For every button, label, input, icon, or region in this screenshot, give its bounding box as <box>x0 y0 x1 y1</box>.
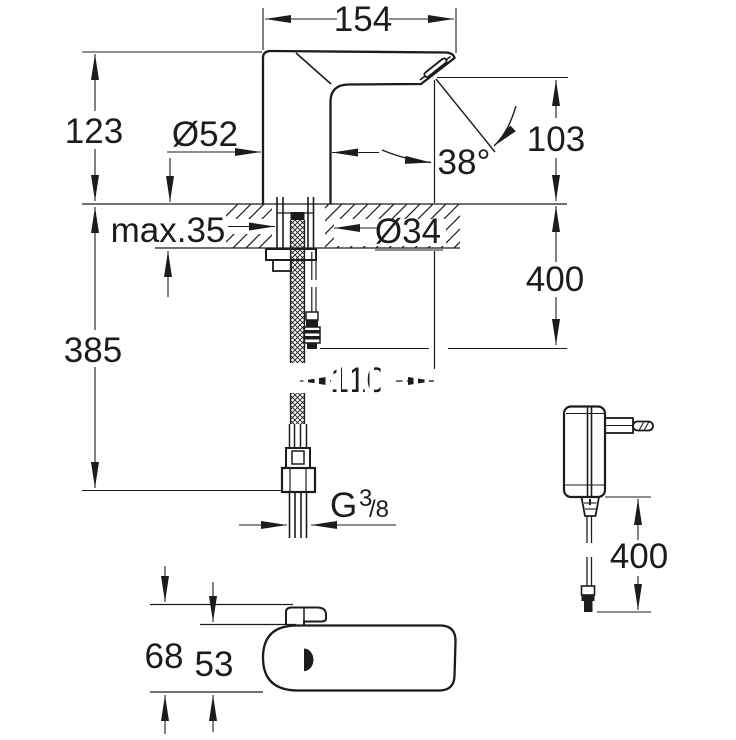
faucet-chamfer-edge <box>296 53 331 84</box>
cable-plug <box>304 312 320 349</box>
dim-label-spout-width: 154 <box>334 0 392 39</box>
psu-body <box>564 407 605 498</box>
shank-collar <box>291 212 305 220</box>
top-view-spout-tab <box>286 608 326 626</box>
mounting-nut <box>273 260 291 271</box>
dim-label-mounting-hole: Ø34 <box>375 212 441 251</box>
thread-letter: G <box>330 486 357 525</box>
dim-label-height-above-deck: 123 <box>65 112 123 151</box>
faucet-dimension-drawing: 154 123 385 Ø52 max.35 Ø34 <box>0 0 736 740</box>
psu-plug-prong <box>605 418 653 433</box>
dim-label-height-below-deck: 385 <box>64 331 122 370</box>
dim-label-body-depth: 53 <box>195 645 234 684</box>
dim-label-cable-length: 400 <box>526 260 584 299</box>
top-view-sensor-mark <box>304 649 313 672</box>
braided-hose-lower <box>291 393 305 424</box>
dim-label-max-deck-thickness: max.35 <box>111 211 226 250</box>
braided-hose-upper <box>291 220 305 363</box>
technical-drawing-page: 154 123 385 Ø52 max.35 Ø34 <box>0 0 736 740</box>
dim-label-outlet-height: 103 <box>527 120 585 159</box>
psu-cable-plug <box>582 586 595 612</box>
dim-label-spray-angle: 38° <box>438 143 491 182</box>
thread-denominator: /8 <box>369 496 389 523</box>
dim-label-spout-projection: 110 <box>330 361 386 400</box>
dim-label-overall-depth: 68 <box>145 637 184 676</box>
psu-strain-relief <box>582 497 600 516</box>
faucet-side-view <box>263 51 455 204</box>
fitting-nut <box>282 468 315 492</box>
psu-cable <box>587 516 592 586</box>
dim-label-psu-cable-length: 400 <box>610 537 668 576</box>
dim-label-base-diameter: Ø52 <box>172 115 238 154</box>
mounting-shank <box>266 197 320 538</box>
hose-fitting <box>282 424 315 538</box>
top-view-body-outline <box>263 626 456 691</box>
dim-spout-projection: 110 <box>300 361 434 400</box>
power-supply-unit <box>564 407 653 613</box>
